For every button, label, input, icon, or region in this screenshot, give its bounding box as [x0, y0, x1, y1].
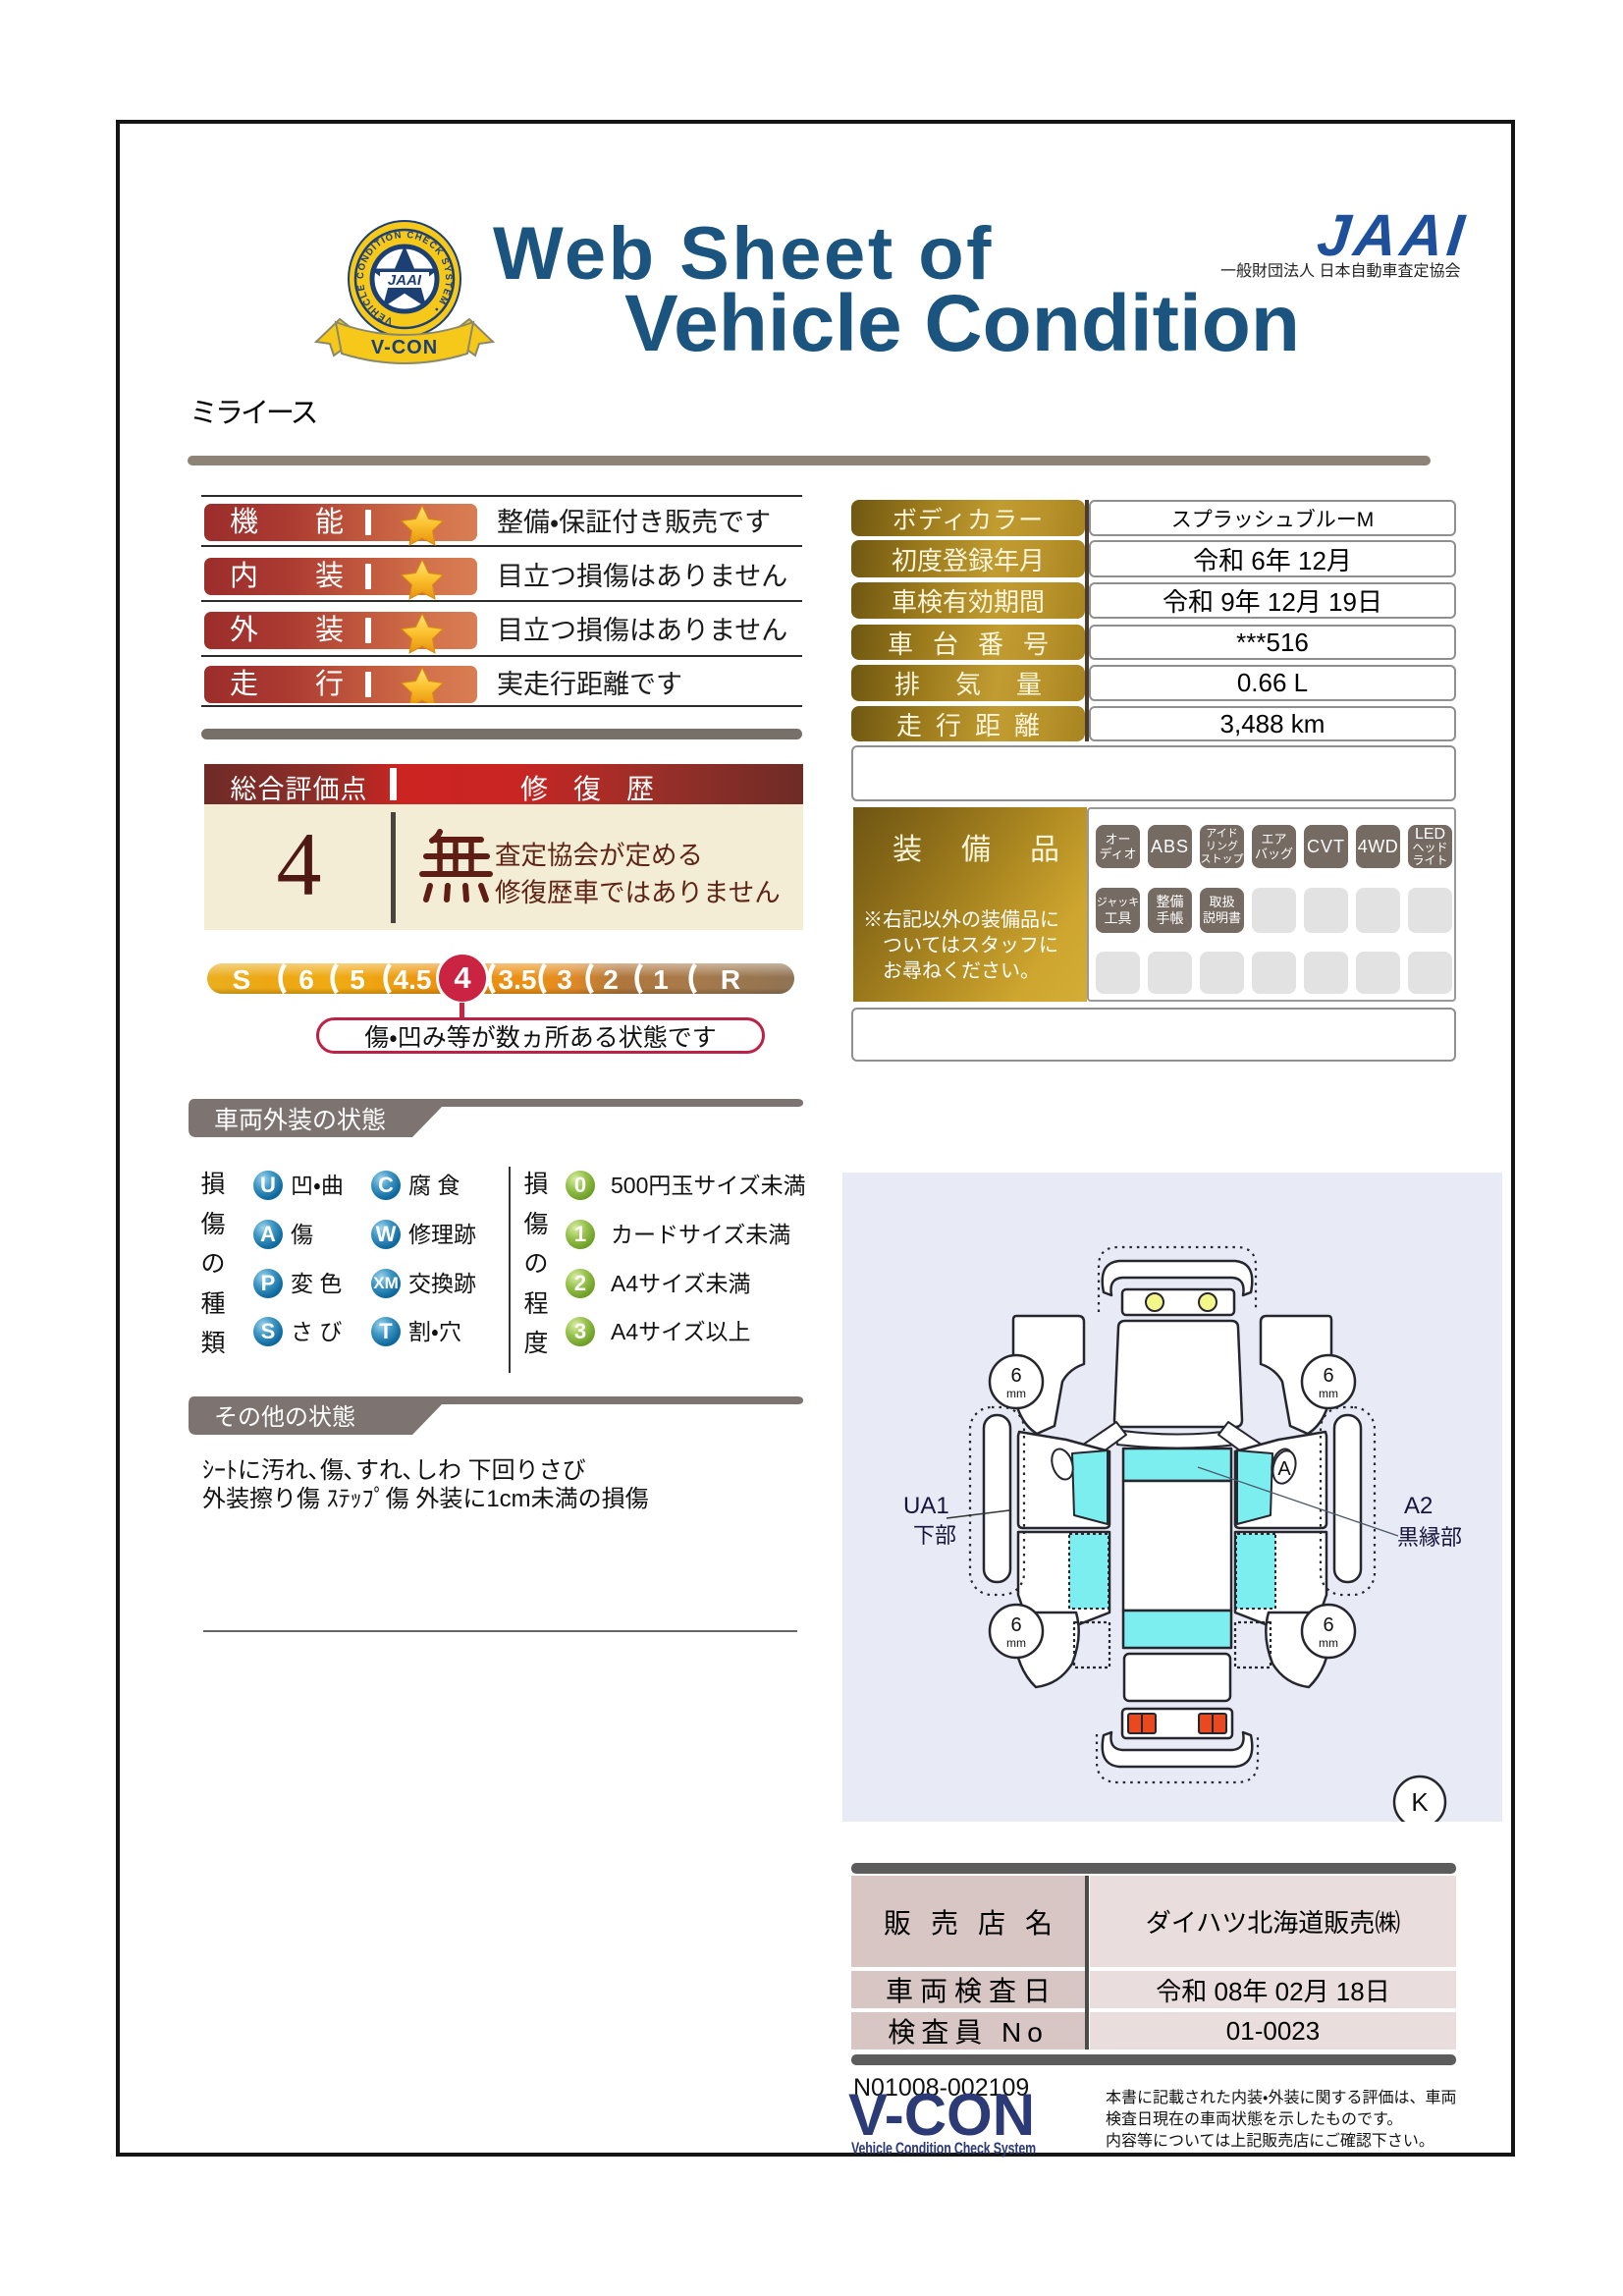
- svg-text:K: K: [1411, 1787, 1429, 1817]
- svg-text:6: 6: [298, 964, 314, 994]
- svg-text:黒縁部: 黒縁部: [1397, 1525, 1462, 1550]
- svg-text:6: 6: [1323, 1614, 1333, 1636]
- svg-text:mm: mm: [1006, 1636, 1026, 1650]
- svg-text:6: 6: [1010, 1614, 1021, 1636]
- svg-text:V-CON: V-CON: [371, 337, 438, 358]
- svg-text:3.5: 3.5: [499, 964, 537, 994]
- svg-text:A: A: [1277, 1458, 1291, 1480]
- svg-text:2: 2: [603, 964, 619, 994]
- svg-text:1: 1: [653, 964, 669, 994]
- svg-text:6: 6: [1010, 1365, 1021, 1387]
- svg-text:R: R: [721, 964, 740, 994]
- svg-text:その他の状態: その他の状態: [214, 1404, 355, 1431]
- svg-text:4.5: 4.5: [394, 964, 432, 994]
- svg-text:mm: mm: [1319, 1387, 1338, 1400]
- svg-text:mm: mm: [1006, 1387, 1026, 1400]
- svg-text:車両外装の状態: 車両外装の状態: [214, 1107, 386, 1134]
- svg-text:JAAI: JAAI: [388, 272, 422, 289]
- svg-text:UA1: UA1: [903, 1493, 949, 1519]
- svg-text:6: 6: [1323, 1365, 1333, 1387]
- svg-text:下部: 下部: [913, 1523, 956, 1548]
- svg-text:5: 5: [350, 964, 365, 994]
- svg-text:3: 3: [557, 964, 572, 994]
- svg-text:A2: A2: [1404, 1493, 1433, 1519]
- svg-text:mm: mm: [1319, 1636, 1338, 1650]
- svg-text:S: S: [233, 964, 251, 994]
